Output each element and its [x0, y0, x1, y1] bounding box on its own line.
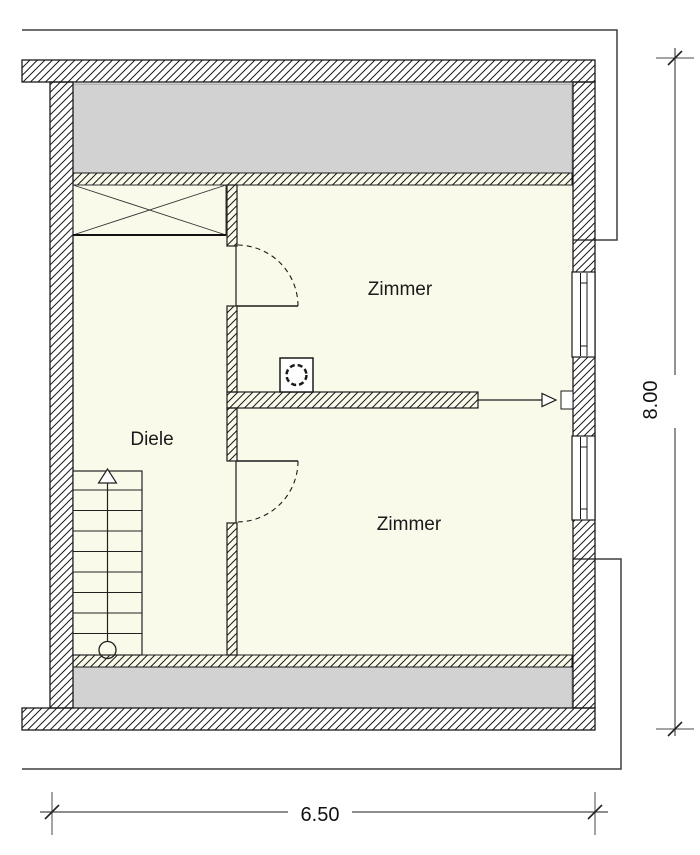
outer-wall-bottom [22, 708, 595, 730]
partition-wall-mid-upper [227, 306, 237, 392]
outer-wall-left [50, 82, 73, 708]
dimension-height-label: 8.00 [640, 381, 662, 420]
knee-wall-bottom [73, 655, 572, 667]
stairs [73, 469, 142, 659]
window-lower [572, 436, 595, 520]
room-label-lower: Zimmer [377, 514, 442, 535]
vent-chimney [280, 358, 313, 392]
outer-wall-top [22, 60, 595, 82]
floor-plan-canvas: Zimmer Diele Zimmer 8.00 6.50 [0, 0, 700, 850]
window-upper [572, 272, 595, 357]
floor-plan-drawing: Zimmer Diele Zimmer 8.00 6.50 [0, 0, 700, 850]
dimension-width-label: 6.50 [301, 804, 340, 826]
knee-wall-top [73, 173, 572, 185]
outer-wall-right [573, 82, 595, 708]
wall-opening-niche [561, 391, 573, 409]
partition-wall-lower [227, 523, 237, 655]
partition-wall-horizontal [227, 392, 478, 408]
partition-wall-upper [227, 185, 237, 246]
room-label-upper: Zimmer [368, 279, 433, 300]
vent-pipe-icon [287, 365, 307, 385]
room-label-hall: Diele [130, 429, 173, 450]
attic-slope-area-bottom [73, 667, 572, 708]
partition-wall-mid-lower [227, 408, 237, 461]
attic-slope-area-top [73, 84, 572, 173]
